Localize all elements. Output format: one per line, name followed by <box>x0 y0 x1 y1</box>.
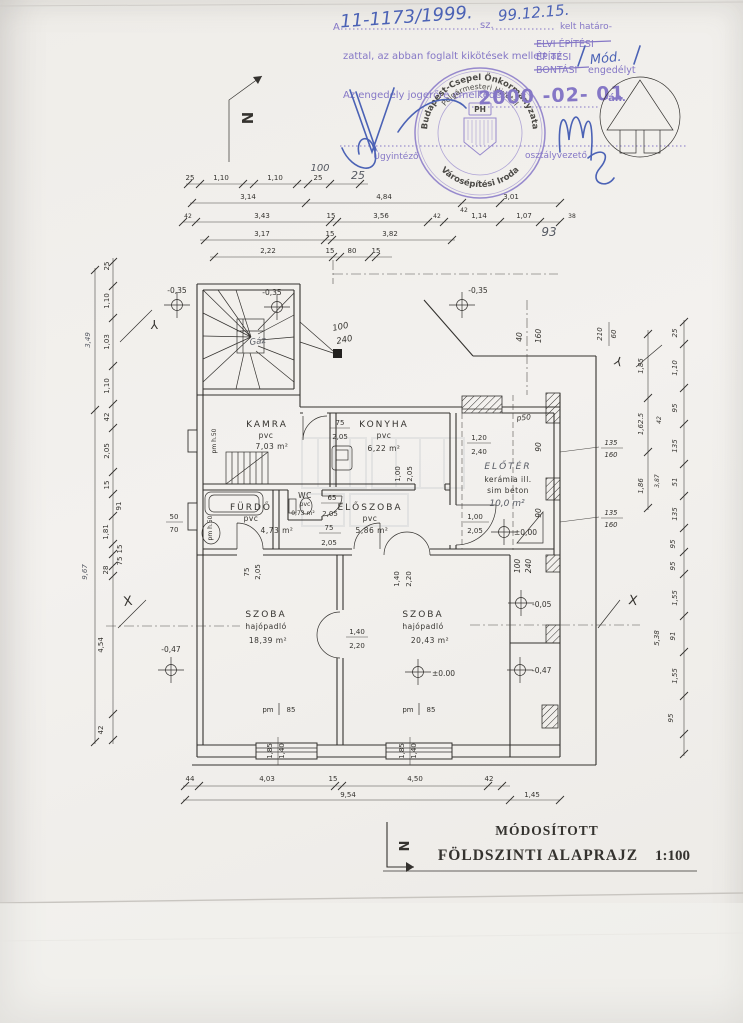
dim-label: 4,50 <box>407 775 423 783</box>
window-size: 50 <box>170 513 179 521</box>
room-floor: hajópadló <box>402 622 443 631</box>
dim-label: 91 <box>115 502 123 511</box>
door-size: 75 <box>325 524 334 532</box>
window-size: 135 <box>605 439 618 447</box>
dim-label: 95 <box>669 539 677 548</box>
room-name-szoba1: SZOBA <box>245 610 286 620</box>
dim-label: 2,22 <box>260 247 276 255</box>
dim-label: 1,07 <box>516 212 532 220</box>
dim-label: 44 <box>186 775 195 783</box>
level-label: -0,35 <box>262 288 282 297</box>
dim-label: 95 <box>667 713 675 722</box>
door-size: 240 <box>336 334 354 347</box>
window-size: 160 <box>605 521 618 529</box>
level-label: -0,05 <box>532 600 552 609</box>
room-area: 6,22 m² <box>368 444 401 453</box>
room-floor: kerámia ill. <box>484 475 531 484</box>
dim-label: 3,87 <box>654 474 661 488</box>
title-scale: 1:100 <box>655 848 690 864</box>
dim-label: 42 <box>433 213 441 220</box>
window-size: 1,85 <box>398 743 406 759</box>
dim-label: 95 <box>671 403 679 412</box>
room-floor: pvc <box>244 514 259 523</box>
staircase <box>203 290 294 484</box>
room-name-eloszoba: ELŐSZOBA <box>337 502 402 513</box>
dim-label: 25 <box>103 262 111 271</box>
window-size: 1,85 <box>266 743 274 759</box>
level-label: ±0,00 <box>514 528 537 537</box>
dim-label: 25 <box>186 174 195 182</box>
room-area: 10,0 m² <box>489 499 525 509</box>
window-size: 135 <box>605 509 618 517</box>
door-size: 2,20 <box>349 642 365 650</box>
scanned-floor-plan-page: A 11-1173/1999. sz. 99.12.15. kelt határ… <box>0 0 743 1023</box>
level-label: -0,47 <box>161 645 181 654</box>
section-letter: Y <box>150 317 159 331</box>
level-label: -0,47 <box>532 666 552 675</box>
right-dimensions: 25 1,10 95 135 51 135 95 95 1,55 91 1,55… <box>560 318 688 758</box>
dim-label: 3,14 <box>240 193 256 201</box>
door-size: 100 <box>332 321 350 334</box>
door-size: 75 <box>243 568 251 577</box>
room-name-konyha: KONYHA <box>359 420 409 430</box>
dim-total: 3,49 <box>84 332 92 348</box>
hw-door-100-240: 100 240 <box>332 321 354 347</box>
dim-label: 4,84 <box>376 193 392 201</box>
door-size: 100 <box>513 559 522 574</box>
dim-label: 2,05 <box>103 443 111 459</box>
section-letter: X <box>627 593 638 609</box>
dim-label: 95 <box>669 561 677 570</box>
window-note: pm <box>402 706 413 714</box>
title-block: N MÓDOSÍTOTT FÖLDSZINTI ALAPRAJZ 1:100 <box>383 822 697 872</box>
north-letter: N <box>395 841 410 852</box>
dim-label: 25 <box>671 328 679 337</box>
dim-label: 1,62.5 <box>637 412 645 435</box>
dim-label: 3,56 <box>373 212 389 220</box>
dim-label: 28 <box>102 566 110 575</box>
floor-plan-drawing: A 11-1173/1999. sz. 99.12.15. kelt határ… <box>0 0 743 1023</box>
dim-label: 1,55 <box>671 668 679 684</box>
permit-prefix: A <box>333 22 340 33</box>
door-size: 2,05 <box>406 466 414 482</box>
window-size: 1,40 <box>393 571 401 587</box>
dim-total: 9,67 <box>81 564 89 580</box>
room-name-szoba2: SZOBA <box>402 610 443 620</box>
dim-label: 15 <box>372 247 381 255</box>
dim-label: 42 <box>103 413 111 422</box>
level-label: ±0.00 <box>432 669 455 678</box>
window-size: 210 <box>596 327 604 341</box>
left-dimensions: 25 1,10 1,03 1,10 42 2,05 15 91 1,81 15 … <box>81 258 124 746</box>
sz-label: sz. <box>480 20 494 31</box>
bottom-dimensions: 44 4,03 15 4,50 42 9,54 1,45 <box>181 775 564 804</box>
window-size: 60 <box>610 329 618 338</box>
dim-label: 38 <box>568 213 576 220</box>
section-letter: Y <box>612 353 625 369</box>
top-dimensions: 25 1,10 1,10 25 100 25 3,14 4,84 42 3,01… <box>179 163 576 284</box>
room-area: 0,73 m² <box>291 510 315 517</box>
seal-crest: PH <box>464 103 496 155</box>
window-size: 2,20 <box>405 571 413 587</box>
room-name-eloter: ELŐTÉR <box>484 460 531 472</box>
dim-label: 4,03 <box>259 775 275 783</box>
level-label: -0,35 <box>468 286 488 295</box>
seal-bottom-text: Városépítési Iroda <box>439 165 522 190</box>
north-letter: N <box>238 112 256 125</box>
window-size: 160 <box>605 451 618 459</box>
room-floor: sim beton <box>487 486 529 495</box>
window-note: 85 <box>287 706 296 714</box>
dim-label: 1,10 <box>103 293 111 309</box>
dim-label: 80 <box>348 247 357 255</box>
window-size: 40 <box>515 332 524 342</box>
door-size: 2,05 <box>321 539 337 547</box>
kelt-label: kelt határo- <box>560 22 612 32</box>
dim-label: 1,03 <box>103 334 111 350</box>
door-size: 2,05 <box>322 510 338 518</box>
dim-label: 1,45 <box>524 791 540 799</box>
dim-label: 3,82 <box>382 230 398 238</box>
room-floor: hajópadló <box>245 622 286 631</box>
door-size: 1,40 <box>349 628 365 636</box>
window-size: 70 <box>170 526 179 534</box>
dim-label: 42 <box>656 416 663 424</box>
dim-handwritten: 93 <box>541 225 556 239</box>
title-modositott: MÓDOSÍTOTT <box>495 823 599 838</box>
ugyintezo-label: Ügyintéző <box>373 151 419 162</box>
dim-label: 3,43 <box>254 212 270 220</box>
room-floor: pvc <box>363 514 378 523</box>
dim-label: 1,10 <box>267 174 283 182</box>
dim-total: 5,38 <box>653 630 661 646</box>
door-size: 75 <box>336 419 345 427</box>
window-size: 1,40 <box>410 743 418 759</box>
dim-handwritten: p50 <box>515 412 531 422</box>
dim-label: 91 <box>669 632 677 641</box>
section-marks: X X Y Y <box>106 310 662 628</box>
dim-label: 135 <box>671 439 679 453</box>
door-size: 240 <box>524 559 533 574</box>
door-size: 2,05 <box>332 433 348 441</box>
dim-label: 42 <box>460 207 468 214</box>
dim-label: 3,01 <box>503 193 519 201</box>
dim-label: 1,14 <box>471 212 487 220</box>
dim-label: 15 <box>103 481 111 490</box>
dim-label: 42 <box>485 775 494 783</box>
door-size: 1,00 <box>394 466 402 482</box>
dim-label: 1,81 <box>102 524 110 540</box>
level-label: -0,35 <box>167 286 187 295</box>
window-size: 1,40 <box>278 743 286 759</box>
room-name-wc: WC <box>298 491 312 500</box>
dim-label: 75 <box>116 557 124 566</box>
dim-handwritten: 100 <box>310 163 329 174</box>
room-area: 5,86 m² <box>356 526 389 535</box>
sill-note: pm h.50 <box>207 515 214 540</box>
dim-label: 15 <box>327 212 336 220</box>
window-note: 85 <box>427 706 436 714</box>
dim-label: 15 <box>326 230 335 238</box>
opening-labels: 75 2,05 1,00 2,05 65 2,05 75 2,05 75 2,0… <box>166 329 543 765</box>
window-size: 160 <box>534 329 543 344</box>
dim-label: 1,10 <box>671 360 679 376</box>
dim-label: 1,10 <box>213 174 229 182</box>
dim-label: 42 <box>184 213 192 220</box>
dim-label: 135 <box>671 507 679 521</box>
svg-text:Városépítési Iroda: Városépítési Iroda <box>439 165 522 190</box>
dim-label: 15 <box>116 545 124 554</box>
room-area: 7,03 m² <box>256 442 289 451</box>
dim-label: 25 <box>314 174 323 182</box>
dim-label: 15 <box>329 775 338 783</box>
room-area: 4,73 m² <box>261 526 294 535</box>
dim-handwritten: 90 <box>534 508 543 518</box>
dim-label: 3,17 <box>254 230 270 238</box>
room-floor: pvc <box>377 431 392 440</box>
section-letter: X <box>122 594 133 610</box>
door-size: 2,05 <box>254 564 262 580</box>
case-number-handwritten: 11-1173/1999. <box>339 2 473 32</box>
room-floor: pvc <box>300 501 311 508</box>
dim-label: 1,10 <box>103 378 111 394</box>
window-size: 2,40 <box>471 448 487 456</box>
room-area: 20,43 m² <box>411 636 449 645</box>
door-size: 65 <box>328 494 337 502</box>
dim-label: 51 <box>671 478 679 487</box>
title-alaprajz: FÖLDSZINTI ALAPRAJZ <box>438 847 638 864</box>
date-stamp: 2000 -02- 01 <box>478 82 625 109</box>
window-note: pm <box>262 706 273 714</box>
dim-label: 1,55 <box>671 590 679 606</box>
option-epitesi: ÉPÍTÉSI <box>536 51 571 63</box>
room-name-furdo: FÜRDŐ <box>230 502 272 513</box>
dim-handwritten: 25 <box>351 169 365 182</box>
door-size: 2,05 <box>467 527 483 535</box>
gas-meter-symbol <box>333 349 342 358</box>
dim-label: 42 <box>97 726 105 735</box>
dim-handwritten: 90 <box>534 442 543 452</box>
dim-label: 1,86 <box>637 478 645 494</box>
sill-note: pm h.50 <box>211 428 218 453</box>
north-arrow-top: N <box>229 76 262 162</box>
osztalyvezeto-label: osztályvezető <box>525 151 587 161</box>
permit-line2: zattal, az abban foglalt kikötések melle… <box>343 50 562 62</box>
room-floor: pvc <box>259 431 274 440</box>
dim-label: 4,54 <box>97 637 105 653</box>
dim-label: 9,54 <box>340 791 356 799</box>
room-name-kamra: KAMRA <box>246 420 288 430</box>
window-size: 1,20 <box>471 434 487 442</box>
room-area: 18,39 m² <box>249 636 287 645</box>
door-size: 1,00 <box>467 513 483 521</box>
dim-label: 15 <box>326 247 335 255</box>
